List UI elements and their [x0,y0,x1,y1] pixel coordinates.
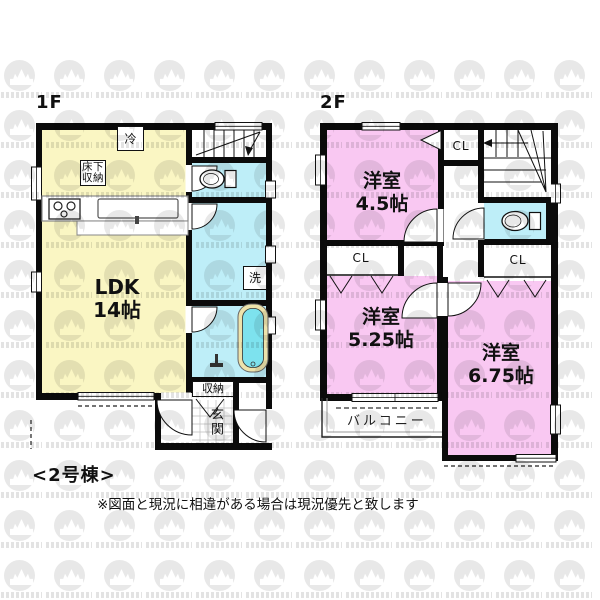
toilet2-door-arc [453,208,484,239]
closet2-label: CL [346,251,376,265]
ldk-room-fill [42,130,186,393]
room525-size: 5.25帖 [325,329,437,352]
balcony-label: バルコニー [347,410,427,429]
stairs-2f [483,130,551,197]
room45-size: 4.5帖 [327,193,437,216]
room45-name: 洋室 [327,170,437,193]
toilet1-icon [200,170,236,188]
floor1-dashed-lines [31,406,153,449]
room525-name: 洋室 [325,306,437,329]
room675-label: 洋室 6.75帖 [445,342,557,388]
ldk-size: 14帖 [62,299,172,322]
entrance-label: 玄関 [206,407,225,447]
laundry-label: 洗 [243,266,267,290]
underfloor-storage-label: 床下収納 [80,160,106,186]
storage-label: 収納 [192,381,234,397]
floorplan-page: 1F 2F 冷 床下収納 LDK 14帖 洗 収納 玄関 CL CL CL 洋室… [0,0,600,600]
toilet2-icon [502,212,541,231]
floor1-label: 1F [36,92,63,113]
closet3-label: CL [503,253,533,267]
room675-size: 6.75帖 [445,365,557,388]
room525-label: 洋室 5.25帖 [325,306,437,352]
floor2-label: 2F [320,92,347,113]
room45-label: 洋室 4.5帖 [327,170,437,216]
room675-name: 洋室 [445,342,557,365]
closet1-label: CL [446,139,476,153]
hall-door-arc [157,400,192,435]
ldk-room-label: LDK 14帖 [62,276,172,322]
floor2-doors [402,208,485,318]
fridge-label: 冷 [117,126,144,151]
stove-icon [49,199,80,219]
disclaimer-text: ※図面と現況に相違がある場合は現況優先と致します [97,493,419,513]
unit-number-label: <2号棟> [32,461,116,487]
bathtub-icon [238,304,268,372]
ldk-name: LDK [62,276,172,299]
